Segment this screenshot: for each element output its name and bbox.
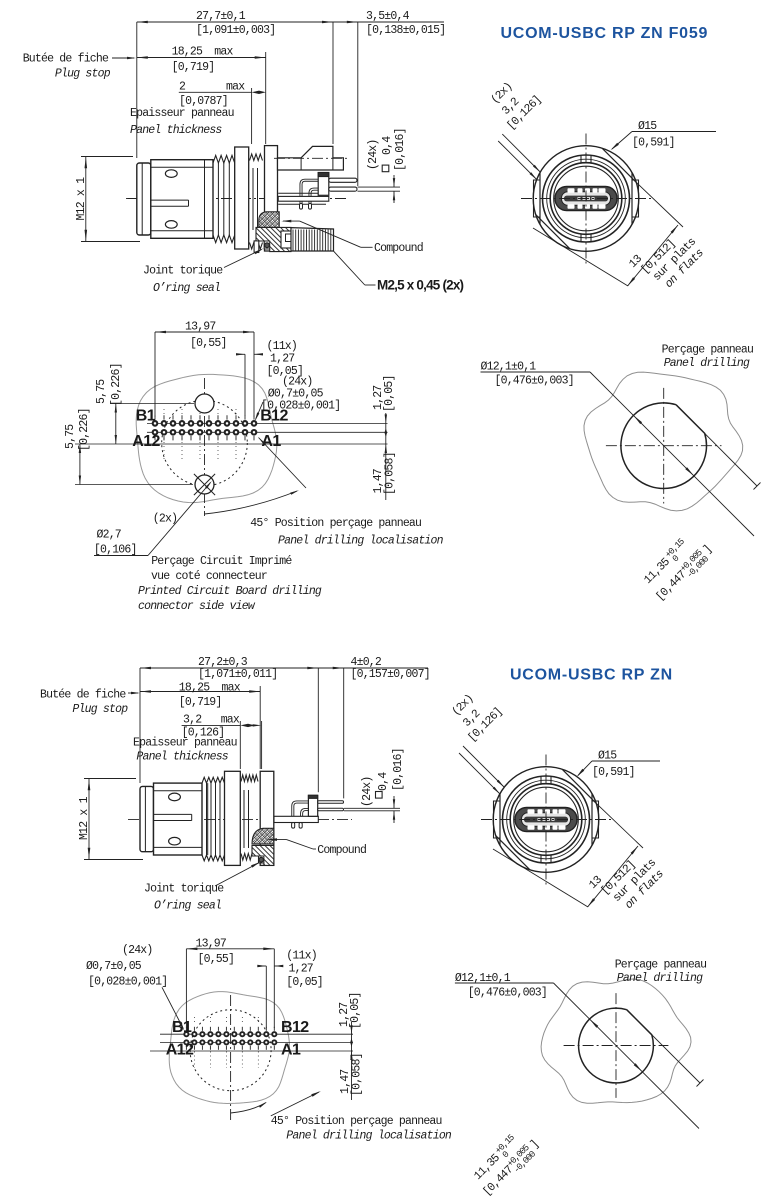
svg-text:B1: B1 (136, 407, 156, 424)
svg-text:A1: A1 (261, 433, 281, 450)
svg-text:A1: A1 (281, 1042, 301, 1059)
svg-text:[0,591]: [0,591] (632, 137, 675, 150)
svg-text:1,27: 1,27 (289, 963, 313, 976)
svg-text:[0,05]: [0,05] (349, 992, 362, 1029)
svg-text:(11x): (11x) (267, 340, 298, 353)
svg-text:O’ring seal: O’ring seal (153, 282, 220, 295)
svg-text:Plug stop: Plug stop (55, 68, 111, 81)
svg-text:[0,016]: [0,016] (394, 128, 407, 171)
svg-text:[0,058]: [0,058] (384, 452, 397, 495)
svg-text:M2,5 x 0,45 (2x): M2,5 x 0,45 (2x) (377, 278, 464, 293)
svg-text:(24x): (24x) (122, 944, 153, 957)
svg-text:[1,091±0,003]: [1,091±0,003] (196, 24, 275, 37)
svg-text:1,27: 1,27 (270, 353, 294, 366)
svg-text:[0,106]: [0,106] (94, 544, 137, 557)
svg-text:Perçage Circuit Imprimé: Perçage Circuit Imprimé (151, 555, 292, 568)
svg-text:max: max (226, 81, 245, 94)
svg-text:Butée de fiche: Butée de fiche (40, 689, 126, 702)
svg-text:Perçage panneau: Perçage panneau (615, 959, 707, 972)
svg-text:Printed Circuit Board drilling: Printed Circuit Board drilling (138, 585, 322, 598)
svg-text:[0,058]: [0,058] (351, 1053, 364, 1096)
svg-text:[1,071±0,011]: [1,071±0,011] (198, 668, 277, 681)
svg-text:Epaisseur panneau: Epaisseur panneau (133, 737, 237, 750)
svg-text:Joint torique: Joint torique (143, 265, 223, 278)
svg-text:18,25 max: 18,25 max (172, 46, 234, 59)
svg-text:Compound: Compound (374, 242, 423, 255)
svg-text:Compound: Compound (317, 844, 366, 857)
svg-text:13,97: 13,97 (196, 938, 227, 951)
svg-text:[0,591]: [0,591] (592, 766, 635, 779)
svg-text:3,2: 3,2 (183, 714, 202, 727)
svg-text:Panel thickness: Panel thickness (130, 124, 222, 137)
svg-text:O’ring seal: O’ring seal (154, 900, 221, 913)
svg-text:Ø0,7±0,05: Ø0,7±0,05 (86, 960, 142, 973)
svg-text:[0,016]: [0,016] (392, 748, 405, 791)
svg-text:(24x): (24x) (367, 139, 380, 170)
svg-text:(2x): (2x) (153, 513, 177, 526)
svg-text:[0,05]: [0,05] (383, 375, 396, 412)
svg-text:Panel drilling: Panel drilling (617, 972, 703, 985)
svg-text:M12 x 1: M12 x 1 (78, 796, 91, 840)
svg-text:Butée de fiche: Butée de fiche (23, 53, 109, 66)
svg-text:A12: A12 (166, 1042, 194, 1059)
svg-text:Joint torique: Joint torique (144, 883, 224, 896)
svg-text:27,2±0,3: 27,2±0,3 (198, 656, 248, 669)
svg-text:Panel thickness: Panel thickness (136, 751, 228, 764)
svg-text:5,75: 5,75 (64, 424, 77, 449)
svg-text:Panel drilling localisation: Panel drilling localisation (278, 535, 444, 548)
svg-text:18,25 max: 18,25 max (179, 681, 241, 694)
svg-text:Perçage panneau: Perçage panneau (662, 344, 754, 357)
svg-text:45° Position perçage panneau: 45° Position perçage panneau (250, 517, 421, 530)
svg-text:[0,157±0,007]: [0,157±0,007] (351, 668, 430, 681)
svg-text:Ø2,7: Ø2,7 (97, 529, 121, 542)
svg-text:[0,226]: [0,226] (78, 408, 91, 451)
svg-text:[0,55]: [0,55] (198, 953, 235, 966)
svg-text:[0,719]: [0,719] (172, 61, 215, 74)
svg-text:Panel drilling localisation: Panel drilling localisation (286, 1130, 452, 1143)
svg-text:[0,05]: [0,05] (286, 976, 323, 989)
svg-text:0,4: 0,4 (381, 136, 394, 155)
svg-text:M12 x 1: M12 x 1 (75, 177, 88, 221)
svg-text:27,7±0,1: 27,7±0,1 (196, 10, 246, 23)
svg-text:4±0,2: 4±0,2 (351, 656, 382, 669)
svg-text:5,75: 5,75 (95, 379, 108, 404)
svg-text:[0,028±0,001]: [0,028±0,001] (88, 976, 167, 989)
svg-text:[0,138±0,015]: [0,138±0,015] (366, 24, 445, 37)
svg-text:UCOM-USBC RP ZN F059: UCOM-USBC RP ZN F059 (501, 25, 709, 42)
svg-text:B1: B1 (172, 1019, 192, 1036)
svg-text:2: 2 (179, 81, 186, 94)
svg-text:Epaisseur panneau: Epaisseur panneau (130, 107, 234, 120)
svg-text:B12: B12 (281, 1019, 309, 1036)
svg-text:[0,719]: [0,719] (179, 696, 222, 709)
svg-text:[0,476±0,003]: [0,476±0,003] (495, 375, 574, 388)
svg-text:Panel drilling: Panel drilling (664, 357, 750, 370)
svg-text:max: max (221, 714, 240, 727)
svg-text:[0,226]: [0,226] (110, 363, 123, 406)
svg-text:UCOM-USBC RP ZN: UCOM-USBC RP ZN (510, 667, 673, 684)
svg-text:vue coté connecteur: vue coté connecteur (151, 570, 267, 583)
svg-text:(11x): (11x) (286, 950, 317, 963)
svg-text:connector side view: connector side view (138, 600, 256, 613)
svg-text:(24x): (24x) (361, 776, 374, 807)
svg-text:3,5±0,4: 3,5±0,4 (366, 10, 410, 23)
svg-text:[0,476±0,003]: [0,476±0,003] (468, 987, 547, 1000)
svg-text:45° Position perçage panneau: 45° Position perçage panneau (271, 1115, 442, 1128)
svg-text:[0,55]: [0,55] (190, 337, 227, 350)
svg-text:0,4: 0,4 (377, 772, 390, 791)
svg-text:Plug stop: Plug stop (72, 703, 128, 716)
svg-text:A12: A12 (132, 433, 160, 450)
svg-text:13,97: 13,97 (185, 321, 216, 334)
svg-text:[0,028±0,001]: [0,028±0,001] (261, 400, 340, 413)
